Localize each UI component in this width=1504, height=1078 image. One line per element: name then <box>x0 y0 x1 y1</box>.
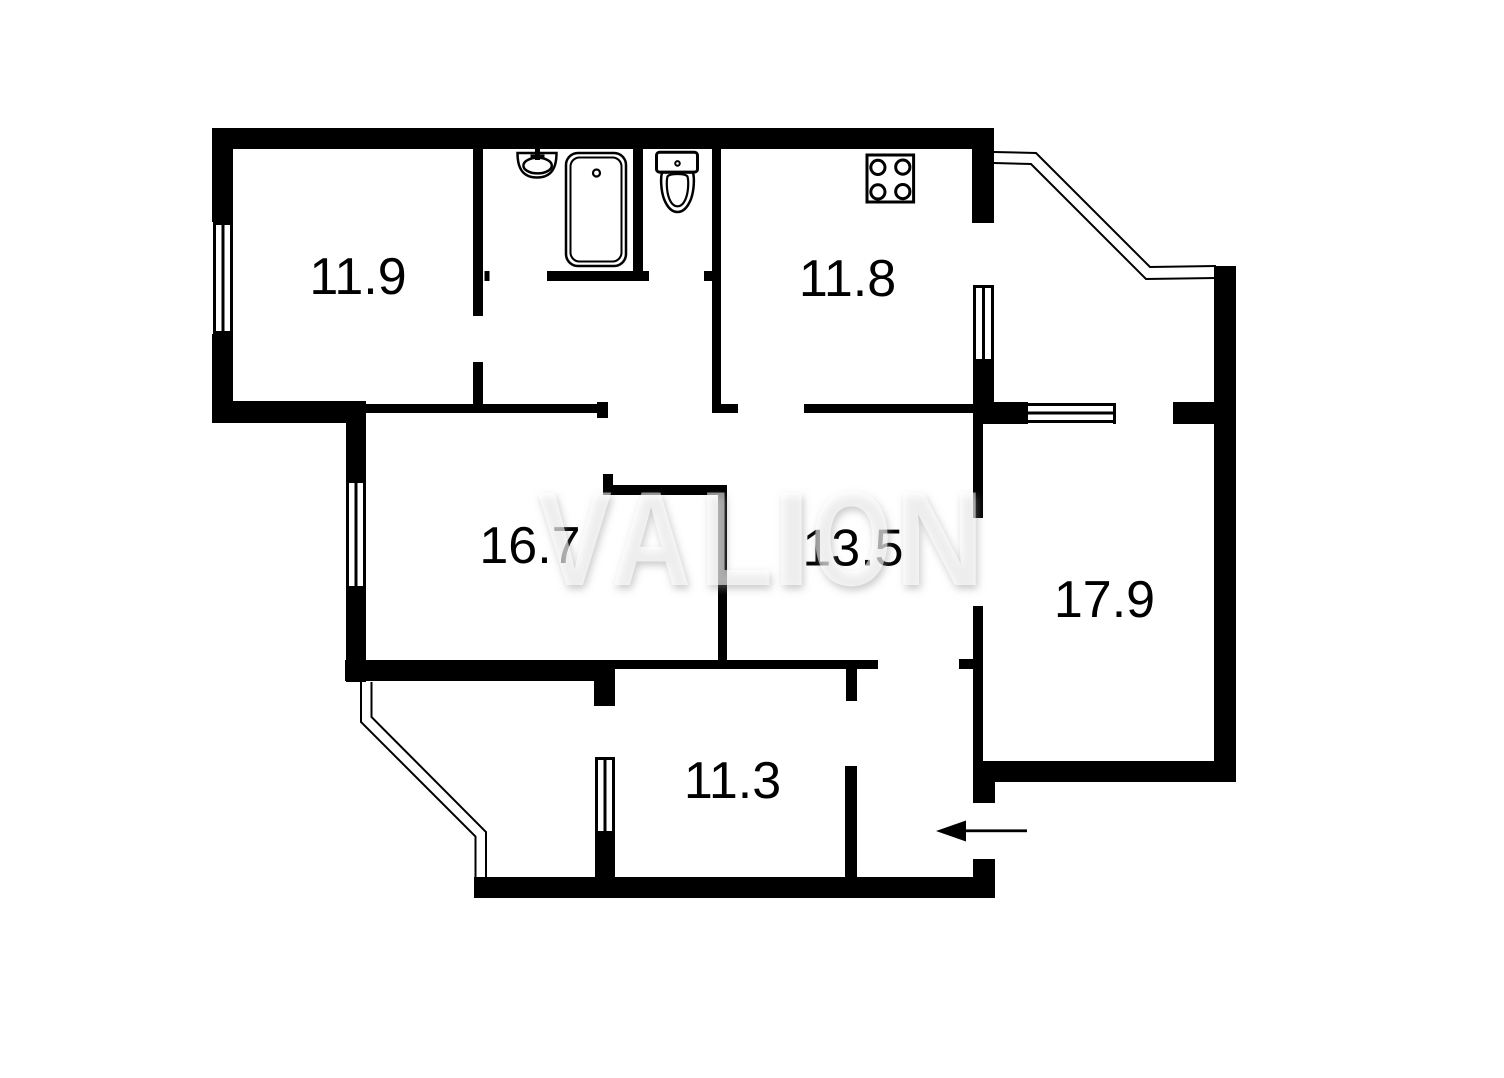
svg-text:17.9: 17.9 <box>1054 571 1155 629</box>
svg-text:I: I <box>772 463 811 614</box>
svg-text:L: L <box>699 463 773 614</box>
svg-text:N: N <box>895 463 984 614</box>
svg-text:V: V <box>537 463 612 614</box>
svg-text:O: O <box>811 463 892 614</box>
svg-text:11.3: 11.3 <box>684 752 781 810</box>
svg-text:11.8: 11.8 <box>799 250 896 308</box>
svg-text:11.9: 11.9 <box>309 248 406 306</box>
svg-text:A: A <box>611 463 691 614</box>
